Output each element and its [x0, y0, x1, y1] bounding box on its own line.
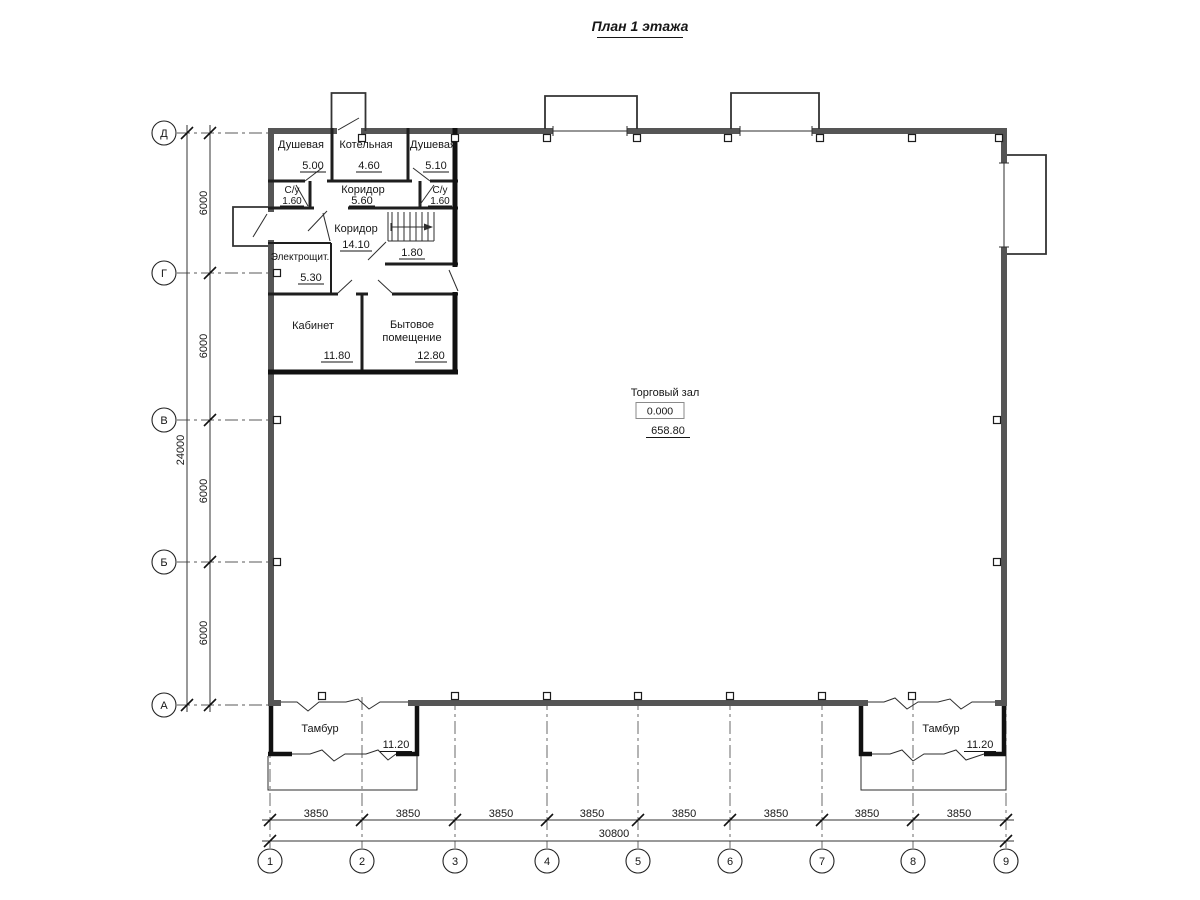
room-label-wc-left: С/у 1.60	[280, 185, 304, 207]
axis-col-5: 5	[626, 849, 650, 873]
vestibule-left-opening-top	[281, 699, 408, 711]
dimension-lines: 6000 6000 6000 6000 24000 3850 3850 3850…	[175, 125, 1014, 847]
axis-col-9: 9	[994, 849, 1018, 873]
door-hall	[449, 270, 458, 291]
room-label-office: Кабинет 11.80	[292, 320, 353, 362]
door-electrical	[323, 213, 330, 241]
dim-bottom-2: 3850	[396, 808, 420, 820]
page-title: План 1 этажа	[592, 18, 689, 34]
room-area: 12.80	[417, 350, 445, 362]
dim-left-4: 6000	[198, 621, 210, 645]
room-area: 1.80	[401, 247, 422, 259]
porch-right	[861, 756, 1006, 790]
door-boiler	[338, 118, 359, 130]
room-name: Торговый зал	[631, 387, 700, 399]
room-name: Кабинет	[292, 320, 334, 332]
axis-col-3-label: 3	[452, 856, 458, 868]
room-label-corridor-main: Коридор 14.10	[334, 223, 377, 251]
axis-col-6-label: 6	[727, 856, 733, 868]
dim-bottom-7: 3850	[855, 808, 879, 820]
vestibule-right-opening-top	[868, 698, 995, 709]
right-side-protrusion	[1007, 155, 1046, 254]
axis-col-lines	[270, 697, 1006, 848]
axis-col-8: 8	[901, 849, 925, 873]
room-name: С/у	[433, 185, 448, 196]
room-label-sales-hall: Торговый зал 0.000 658.80	[631, 387, 700, 438]
axis-col-4: 4	[535, 849, 559, 873]
door-corridor	[308, 211, 327, 231]
room-label-vestibule-right: Тамбур 11.20	[922, 723, 996, 752]
axis-row-b-label: Б	[160, 557, 167, 569]
axis-col-4-label: 4	[544, 856, 550, 868]
room-name: Электрощит.	[271, 252, 330, 263]
shower-boiler-walls	[332, 128, 408, 181]
room-name: С/у	[285, 185, 300, 196]
door-left-protrusion	[253, 214, 267, 237]
dim-bottom-6: 3850	[764, 808, 788, 820]
porch-left	[268, 756, 417, 790]
room-name: Душевая	[278, 139, 324, 151]
axis-col-9-label: 9	[1003, 856, 1009, 868]
room-label-boiler: Котельная 4.60	[339, 139, 392, 172]
room-name-line2: помещение	[382, 332, 441, 344]
top-protrusion-right	[731, 93, 819, 129]
vestibules	[268, 698, 1006, 790]
room-area: 5.60	[351, 195, 372, 207]
room-name: Тамбур	[301, 723, 338, 735]
axis-col-1-label: 1	[267, 856, 273, 868]
room-area: 11.20	[967, 739, 994, 751]
dim-left-1: 6000	[198, 191, 210, 215]
room-name: Котельная	[339, 139, 392, 151]
axis-row-a-label: А	[160, 700, 168, 712]
dim-bottom-3: 3850	[489, 808, 513, 820]
room-label-vestibule-left: Тамбур 11.20	[301, 723, 412, 752]
drawing-title: План 1 этажа	[592, 18, 689, 38]
right-wall-opening	[999, 163, 1009, 247]
room-label-under-stairs: 1.80	[399, 247, 425, 259]
axis-col-5-label: 5	[635, 856, 641, 868]
room-label-shower-right: Душевая 5.10	[410, 139, 456, 172]
room-label-shower-left: Душевая 5.00	[278, 139, 326, 172]
room-name: Душевая	[410, 139, 456, 151]
top-protrusion-middle	[545, 96, 637, 129]
dim-left-2: 6000	[198, 334, 210, 358]
room-area: 5.10	[425, 160, 446, 172]
left-side-protrusion	[233, 207, 268, 246]
door-office	[338, 280, 352, 293]
axis-col-7: 7	[810, 849, 834, 873]
dim-left-total: 24000	[175, 435, 187, 466]
room-label-utility: Бытовое помещение 12.80	[382, 319, 447, 362]
room-area: 14.10	[342, 239, 370, 251]
dim-bottom-total: 30800	[599, 828, 630, 840]
axis-row-v: В	[152, 408, 176, 432]
elevation-mark: 0.000	[647, 406, 673, 418]
axis-row-d-label: Д	[160, 128, 168, 140]
axis-row-d: Д	[152, 121, 176, 145]
room-area: 11.20	[383, 739, 410, 751]
axis-bubbles-left: Д Г В Б А	[152, 121, 176, 717]
room-area: 11.80	[324, 350, 351, 362]
room-area: 1.60	[430, 196, 450, 207]
axis-col-2: 2	[350, 849, 374, 873]
gate-opening-right	[740, 126, 812, 136]
room-area: 658.80	[651, 425, 685, 437]
axis-row-g-label: Г	[161, 268, 167, 280]
axis-bubbles-bottom: 1 2 3 4 5 6 7 8 9	[258, 849, 1018, 873]
chimney-protrusion	[332, 93, 366, 131]
axis-row-g: Г	[152, 261, 176, 285]
axis-row-v-label: В	[160, 415, 167, 427]
axis-col-8-label: 8	[910, 856, 916, 868]
door-utility	[378, 280, 392, 293]
room-name: Коридор	[334, 223, 377, 235]
axis-grid	[177, 133, 1006, 848]
axis-row-a: А	[152, 693, 176, 717]
axis-col-6: 6	[718, 849, 742, 873]
room-area: 5.30	[300, 272, 321, 284]
dim-left-3: 6000	[198, 479, 210, 503]
axis-row-lines	[177, 133, 268, 705]
dim-bottom-8: 3850	[947, 808, 971, 820]
dim-bottom-4: 3850	[580, 808, 604, 820]
axis-row-b: Б	[152, 550, 176, 574]
wall-openings	[553, 126, 1009, 247]
axis-col-2-label: 2	[359, 856, 365, 868]
room-area: 5.00	[302, 160, 323, 172]
gate-opening-middle	[553, 126, 627, 136]
floor-plan-drawing: План 1 этажа 6000 6000 6000 6000 24000 3…	[0, 0, 1200, 900]
room-name-line1: Бытовое	[390, 319, 434, 331]
room-labels: Душевая 5.00 Котельная 4.60 Душевая 5.10…	[271, 139, 996, 752]
room-name: Тамбур	[922, 723, 959, 735]
staircase	[388, 212, 434, 241]
axis-col-3: 3	[443, 849, 467, 873]
room-label-wc-right: С/у 1.60	[428, 185, 452, 207]
electrical-room-walls	[268, 243, 331, 294]
room-area: 4.60	[358, 160, 379, 172]
room-area: 1.60	[282, 196, 302, 207]
dim-bottom-5: 3850	[672, 808, 696, 820]
axis-col-1: 1	[258, 849, 282, 873]
room-label-electrical: Электрощит. 5.30	[271, 252, 330, 284]
room-label-corridor-small: Коридор 5.60	[341, 184, 384, 207]
dim-bottom-1: 3850	[304, 808, 328, 820]
axis-col-7-label: 7	[819, 856, 825, 868]
